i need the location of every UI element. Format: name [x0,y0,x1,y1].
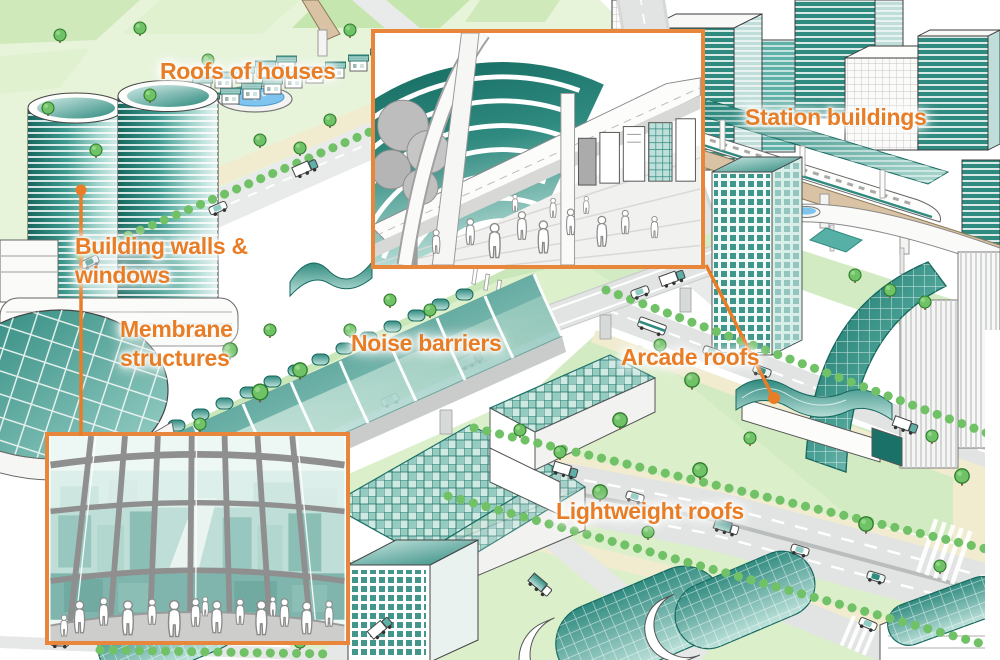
label-roofs-of-houses: Roofs of houses [160,57,336,86]
label-membrane-structures: Membrane structures [120,315,233,373]
city-diagram: Roofs of houses Station buildings Buildi… [0,0,1000,660]
label-noise-barriers: Noise barriers [351,329,502,358]
membrane-interior-inset [45,432,350,645]
right-margin [985,330,1000,660]
office-building [348,540,478,660]
square-glass-tower [712,157,802,355]
teal-tower-3 [918,30,1000,150]
station-interior-inset [371,29,705,269]
label-arcade-roofs: Arcade roofs [621,343,759,372]
label-lightweight-roofs: Lightweight roofs [556,497,744,526]
label-station-buildings: Station buildings [745,103,926,132]
cylindrical-towers [0,81,238,347]
label-building-walls-windows: Building walls & windows [75,232,248,290]
